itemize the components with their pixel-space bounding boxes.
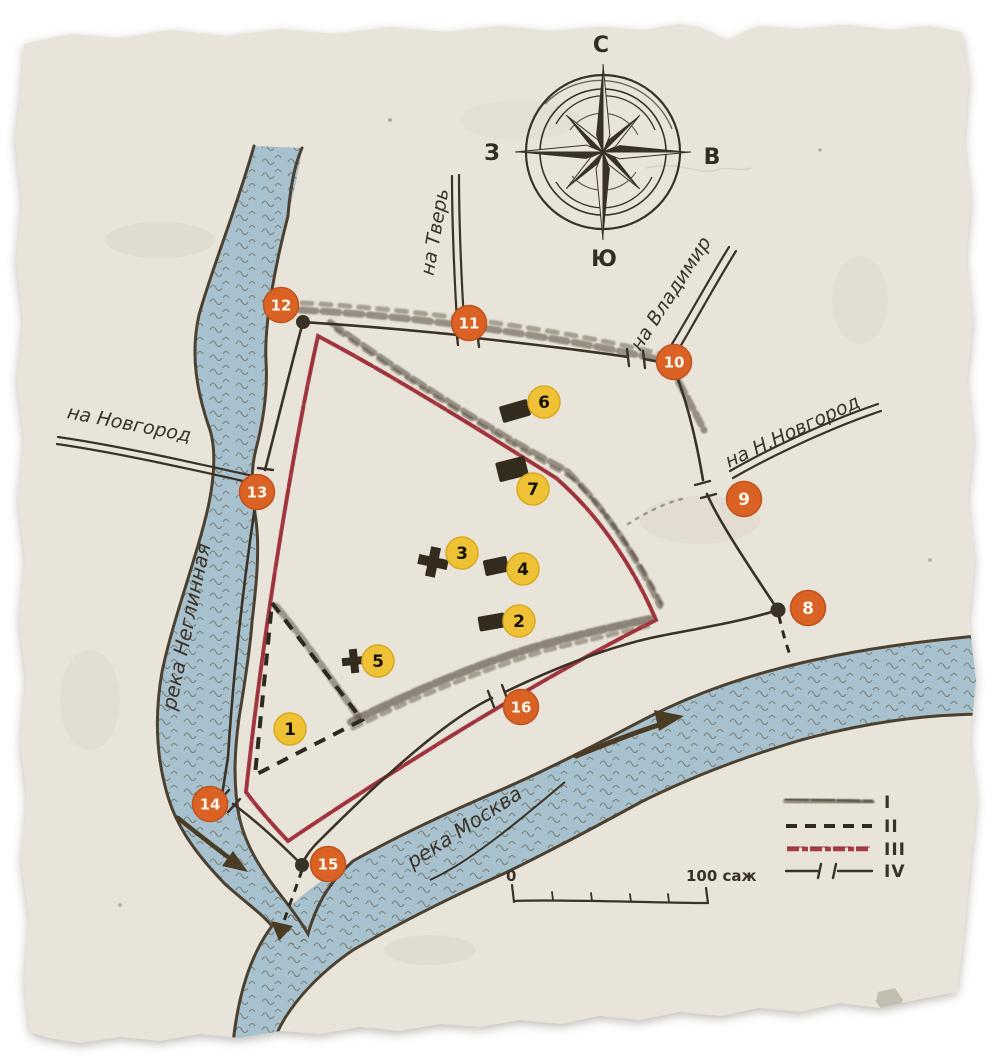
marker-11: 11 [452, 306, 487, 341]
marker-13: 13 [240, 475, 275, 510]
svg-text:3: 3 [456, 544, 468, 564]
svg-text:11: 11 [459, 315, 480, 333]
legend-label-4: IV [884, 862, 905, 882]
svg-text:6: 6 [538, 393, 550, 413]
svg-text:12: 12 [271, 297, 292, 315]
scale-zero-label: 0 [506, 867, 516, 885]
marker-5: 5 [362, 645, 394, 677]
svg-text:10: 10 [664, 354, 685, 372]
svg-text:8: 8 [802, 599, 814, 619]
paper-sheet [15, 24, 977, 1043]
legend-label-3: III [884, 840, 906, 860]
svg-text:14: 14 [200, 796, 221, 814]
legend-label-2: II [884, 817, 899, 837]
marker-2: 2 [503, 605, 535, 637]
compass-east-label: В [704, 145, 721, 170]
map-svg: I II III IV 0 100 саж С Ю З В на Тверь н… [0, 0, 1000, 1059]
svg-text:5: 5 [372, 652, 384, 672]
compass-west-label: З [484, 141, 500, 166]
svg-text:2: 2 [513, 612, 525, 632]
svg-text:7: 7 [527, 480, 539, 500]
marker-3: 3 [446, 537, 478, 569]
marker-8: 8 [791, 591, 826, 626]
marker-15: 15 [311, 847, 346, 882]
marker-4: 4 [507, 553, 539, 585]
marker-12: 12 [264, 288, 299, 323]
marker-10: 10 [657, 345, 692, 380]
marker-14: 14 [193, 787, 228, 822]
svg-text:15: 15 [318, 856, 339, 874]
hand-drawn-historic-map: I II III IV 0 100 саж С Ю З В на Тверь н… [0, 0, 1000, 1059]
compass-north-label: С [593, 33, 609, 58]
svg-text:16: 16 [511, 699, 532, 717]
marker-7: 7 [517, 473, 549, 505]
tower-node-8 [771, 603, 786, 618]
marker-9: 9 [727, 482, 762, 517]
legend-label-1: I [884, 793, 891, 813]
svg-text:9: 9 [738, 490, 750, 510]
svg-text:4: 4 [517, 560, 529, 580]
svg-text:1: 1 [284, 720, 296, 740]
tower-node-12 [296, 315, 310, 329]
scale-distance-label: 100 саж [686, 867, 757, 885]
marker-16: 16 [504, 690, 539, 725]
marker-1: 1 [274, 713, 306, 745]
tower-node-15 [295, 858, 309, 872]
marker-6: 6 [528, 386, 560, 418]
svg-text:13: 13 [247, 484, 268, 502]
compass-south-label: Ю [591, 247, 617, 272]
